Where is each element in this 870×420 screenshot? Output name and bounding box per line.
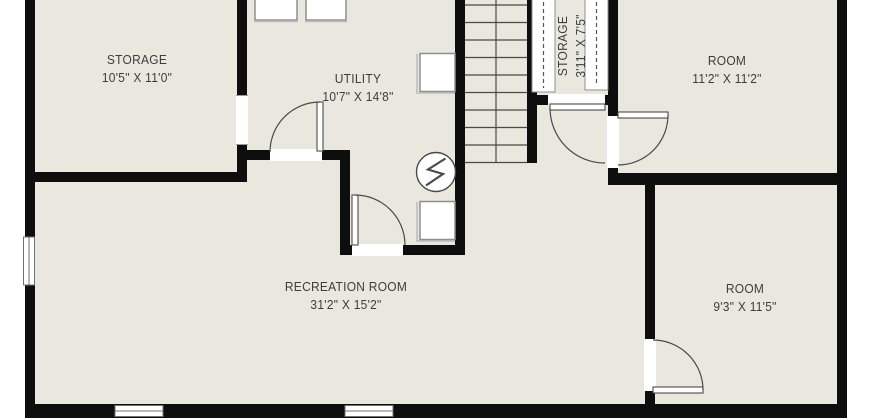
room-name: ROOM	[713, 280, 776, 298]
room-label-room-upper-right: ROOM 11'2" X 11'2"	[692, 52, 761, 88]
room-label-utility: UTILITY 10'7" X 14'8"	[322, 70, 393, 106]
room-dims: 10'7" X 14'8"	[322, 88, 393, 106]
room-name: STORAGE	[102, 51, 172, 69]
room-label-room-lower-right: ROOM 9'3" X 11'5"	[713, 280, 776, 316]
appliance-box-1	[255, 0, 297, 20]
room-label-storage-closet: STORAGE 3'11" X 7'5"	[554, 14, 590, 77]
room-name: UTILITY	[322, 70, 393, 88]
floor-plan: STORAGE 10'5" X 11'0" UTILITY 10'7" X 14…	[0, 0, 870, 420]
appliance-box-2	[306, 0, 346, 20]
room-dims: 31'2" X 15'2"	[285, 296, 407, 314]
water-heater-box	[417, 54, 455, 94]
room-dims: 11'2" X 11'2"	[692, 70, 761, 88]
room-dims: 9'3" X 11'5"	[713, 298, 776, 316]
room-name: ROOM	[692, 52, 761, 70]
room-name: STORAGE	[554, 14, 572, 77]
window-left	[24, 237, 35, 285]
room-dims: 3'11" X 7'5"	[572, 14, 590, 77]
window-bottom-2	[345, 406, 393, 417]
room-name: RECREATION ROOM	[285, 278, 407, 296]
electrical-panel-icon	[417, 153, 456, 192]
utility-box	[417, 202, 455, 242]
window-bottom-1	[115, 406, 163, 417]
room-label-storage-left: STORAGE 10'5" X 11'0"	[102, 51, 172, 87]
room-label-recreation: RECREATION ROOM 31'2" X 15'2"	[285, 278, 407, 314]
room-dims: 10'5" X 11'0"	[102, 69, 172, 87]
